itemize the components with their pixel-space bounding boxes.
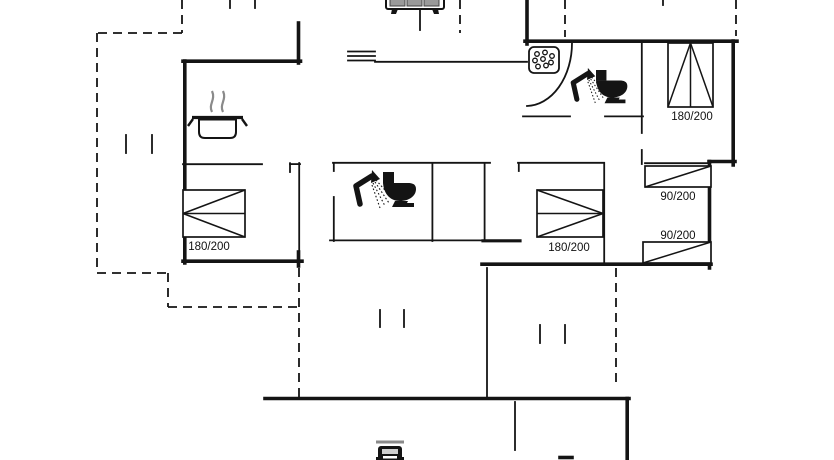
window-tick-icon bbox=[126, 135, 565, 343]
bed-size-label-left: 180/200 bbox=[188, 241, 230, 253]
vent-icon bbox=[348, 52, 375, 61]
bed-size-label-middle: 180/200 bbox=[548, 242, 590, 254]
bed-single-right-upper bbox=[645, 166, 711, 187]
floor-plan: 180/200 180/200 180/200 90/200 90/200 bbox=[0, 0, 834, 460]
bed-size-label-single-upper: 90/200 bbox=[660, 191, 695, 203]
bed-single-right-lower bbox=[643, 242, 711, 263]
walls-exterior bbox=[183, 0, 737, 460]
bed-double-middle bbox=[537, 190, 603, 237]
bed-double-top-right bbox=[668, 43, 713, 107]
car-icon bbox=[376, 442, 404, 460]
bed-size-label-single-lower: 90/200 bbox=[660, 230, 695, 242]
floor-plan-drawing: 180/200 180/200 180/200 90/200 90/200 bbox=[0, 0, 834, 460]
cooking-pot-icon bbox=[188, 91, 247, 138]
bed-double-left bbox=[183, 190, 245, 237]
grill-icon bbox=[386, 0, 444, 14]
walls-interior bbox=[183, 0, 709, 450]
whirlpool-icon bbox=[527, 43, 572, 106]
toilet-icon bbox=[596, 70, 627, 103]
bed-size-label-top-right: 180/200 bbox=[671, 111, 713, 123]
